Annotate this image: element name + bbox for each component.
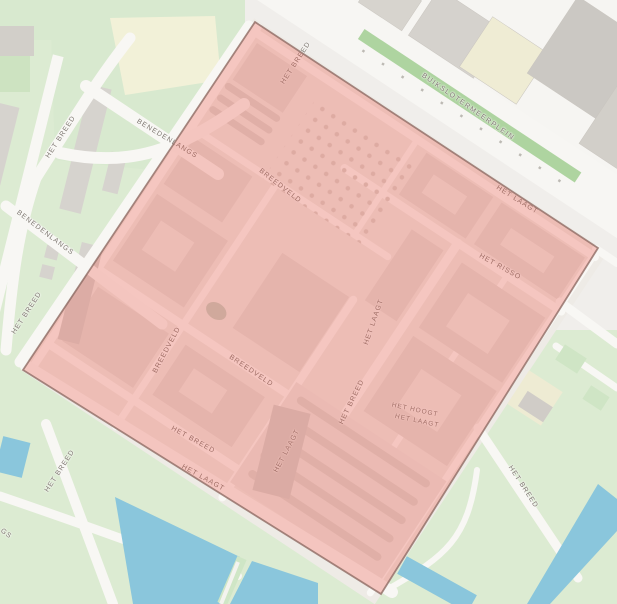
street-label: HET LAAGT — [273, 428, 302, 473]
street-label: HET BREED — [280, 41, 313, 86]
street-label: BREEDVELD — [258, 167, 303, 204]
street-label: HET BREED — [45, 115, 78, 160]
street-label: BENEDENLANGS — [135, 118, 198, 160]
street-label: HET RISSO — [478, 253, 522, 282]
street-label: HET BREED — [11, 291, 44, 336]
street-label: BREEDVELD — [228, 354, 275, 389]
street-label: HET BREED — [170, 425, 216, 455]
street-label: HET BREED — [507, 465, 540, 510]
street-label: BENEDENLANGS — [15, 209, 75, 256]
street-label: HET BREED — [44, 449, 77, 494]
street-label: HET LAAGT — [495, 184, 539, 215]
map-canvas[interactable]: HET BREED BENEDENLANGS BENEDENLANGS HET … — [0, 0, 617, 604]
street-label: BUIKSLOTERMEERPLEIN — [420, 72, 515, 142]
street-label: BREEDVELD — [152, 326, 182, 375]
partial-street-label: GS — [0, 528, 13, 541]
street-label: HET LAAGT — [363, 298, 385, 345]
street-label: HET LAAGT — [180, 463, 225, 492]
street-labels-layer: HET BREED BENEDENLANGS BENEDENLANGS HET … — [0, 0, 617, 604]
street-label: HET BREED — [338, 378, 366, 425]
